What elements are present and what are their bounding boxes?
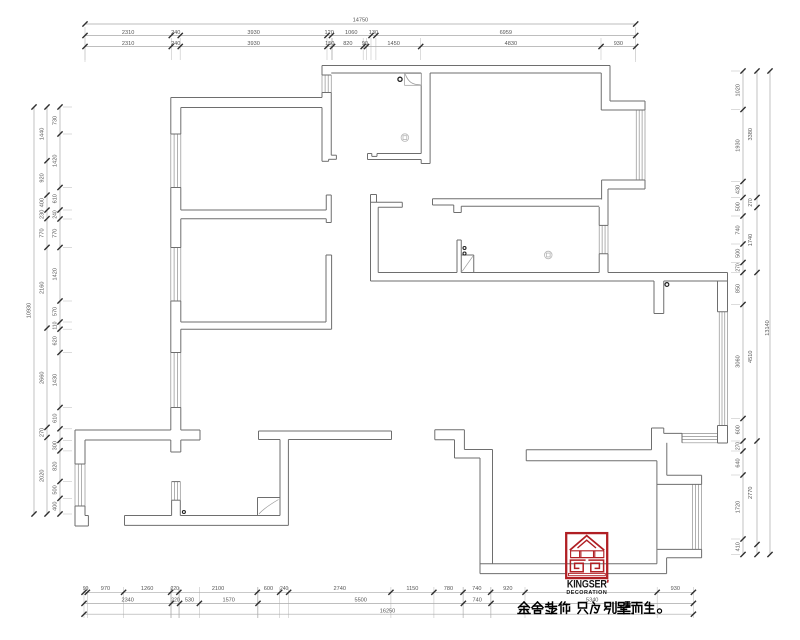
svg-text:500: 500 bbox=[736, 202, 742, 211]
svg-text:2020: 2020 bbox=[40, 470, 46, 482]
svg-text:240: 240 bbox=[171, 41, 180, 47]
svg-text:3060: 3060 bbox=[736, 355, 742, 367]
svg-text:780: 780 bbox=[444, 586, 453, 592]
svg-text:300: 300 bbox=[53, 441, 59, 450]
svg-text:1060: 1060 bbox=[345, 30, 357, 36]
svg-text:270: 270 bbox=[40, 428, 46, 437]
svg-text:410: 410 bbox=[736, 542, 742, 551]
svg-text:1420: 1420 bbox=[53, 155, 59, 167]
svg-text:530: 530 bbox=[185, 597, 194, 603]
svg-text:1440: 1440 bbox=[40, 128, 46, 140]
svg-text:820: 820 bbox=[53, 462, 59, 471]
svg-text:920: 920 bbox=[40, 173, 46, 182]
svg-text:DECORATION: DECORATION bbox=[566, 590, 607, 596]
svg-text:850: 850 bbox=[736, 284, 742, 293]
svg-text:2160: 2160 bbox=[40, 281, 46, 293]
svg-text:2660: 2660 bbox=[40, 371, 46, 383]
svg-text:770: 770 bbox=[40, 228, 46, 237]
svg-text:1720: 1720 bbox=[736, 501, 742, 513]
svg-text:KINGSER: KINGSER bbox=[567, 579, 608, 591]
svg-text:2310: 2310 bbox=[122, 41, 134, 47]
svg-text:2340: 2340 bbox=[121, 597, 133, 603]
svg-text:500: 500 bbox=[736, 249, 742, 258]
svg-text:2770: 2770 bbox=[748, 487, 754, 499]
svg-text:600: 600 bbox=[264, 586, 273, 592]
svg-text:5500: 5500 bbox=[354, 597, 366, 603]
svg-text:240: 240 bbox=[171, 30, 180, 36]
svg-text:770: 770 bbox=[53, 229, 59, 238]
svg-text:130: 130 bbox=[369, 30, 378, 36]
svg-text:3380: 3380 bbox=[748, 128, 754, 140]
svg-text:90: 90 bbox=[83, 586, 89, 592]
svg-text:1430: 1430 bbox=[53, 374, 59, 386]
svg-text:1150: 1150 bbox=[406, 586, 418, 592]
svg-text:1450: 1450 bbox=[387, 41, 399, 47]
svg-text:13140: 13140 bbox=[765, 320, 771, 336]
svg-text:970: 970 bbox=[101, 586, 110, 592]
svg-text:930: 930 bbox=[614, 41, 623, 47]
svg-text:920: 920 bbox=[503, 586, 512, 592]
svg-text:930: 930 bbox=[671, 586, 680, 592]
svg-text:90: 90 bbox=[362, 41, 368, 47]
svg-text:2310: 2310 bbox=[122, 30, 134, 36]
svg-text:5340: 5340 bbox=[586, 597, 598, 603]
svg-text:230: 230 bbox=[40, 210, 46, 219]
svg-text:4830: 4830 bbox=[505, 41, 517, 47]
svg-text:400: 400 bbox=[40, 198, 46, 207]
svg-text:120: 120 bbox=[325, 30, 334, 36]
svg-text:110: 110 bbox=[53, 321, 59, 329]
svg-text:1260: 1260 bbox=[141, 586, 153, 592]
svg-text:610: 610 bbox=[53, 194, 59, 203]
svg-text:2740: 2740 bbox=[334, 586, 346, 592]
svg-text:240: 240 bbox=[53, 210, 59, 219]
svg-text:1420: 1420 bbox=[53, 268, 59, 280]
svg-text:820: 820 bbox=[343, 41, 352, 47]
svg-text:1570: 1570 bbox=[222, 597, 234, 603]
svg-text:400: 400 bbox=[53, 502, 59, 511]
svg-text:3930: 3930 bbox=[247, 41, 259, 47]
svg-text:640: 640 bbox=[736, 458, 742, 467]
svg-text:610: 610 bbox=[53, 413, 59, 422]
svg-text:4510: 4510 bbox=[748, 351, 754, 363]
svg-text:2100: 2100 bbox=[212, 586, 224, 592]
svg-text:600: 600 bbox=[736, 425, 742, 434]
svg-text:620: 620 bbox=[53, 336, 59, 345]
svg-text:3930: 3930 bbox=[247, 30, 259, 36]
svg-text:150: 150 bbox=[325, 41, 334, 47]
svg-text:500: 500 bbox=[53, 485, 59, 494]
svg-text:14750: 14750 bbox=[353, 18, 369, 24]
svg-text:270: 270 bbox=[736, 442, 742, 451]
svg-text:16250: 16250 bbox=[380, 609, 396, 615]
svg-text:740: 740 bbox=[473, 597, 482, 603]
svg-text:270: 270 bbox=[748, 198, 754, 207]
svg-text:1740: 1740 bbox=[748, 234, 754, 246]
svg-text:430: 430 bbox=[736, 185, 742, 194]
svg-text:240: 240 bbox=[280, 586, 289, 592]
svg-text:270: 270 bbox=[736, 263, 742, 272]
svg-text:740: 740 bbox=[472, 586, 481, 592]
svg-text:730: 730 bbox=[53, 116, 59, 125]
svg-text:1020: 1020 bbox=[736, 84, 742, 96]
svg-text:10930: 10930 bbox=[27, 303, 33, 319]
svg-text:740: 740 bbox=[736, 225, 742, 234]
svg-text:570: 570 bbox=[53, 307, 59, 316]
svg-text:1930: 1930 bbox=[736, 139, 742, 151]
svg-text:220: 220 bbox=[171, 597, 180, 603]
svg-text:6959: 6959 bbox=[500, 30, 512, 36]
svg-text:220: 220 bbox=[171, 586, 180, 592]
